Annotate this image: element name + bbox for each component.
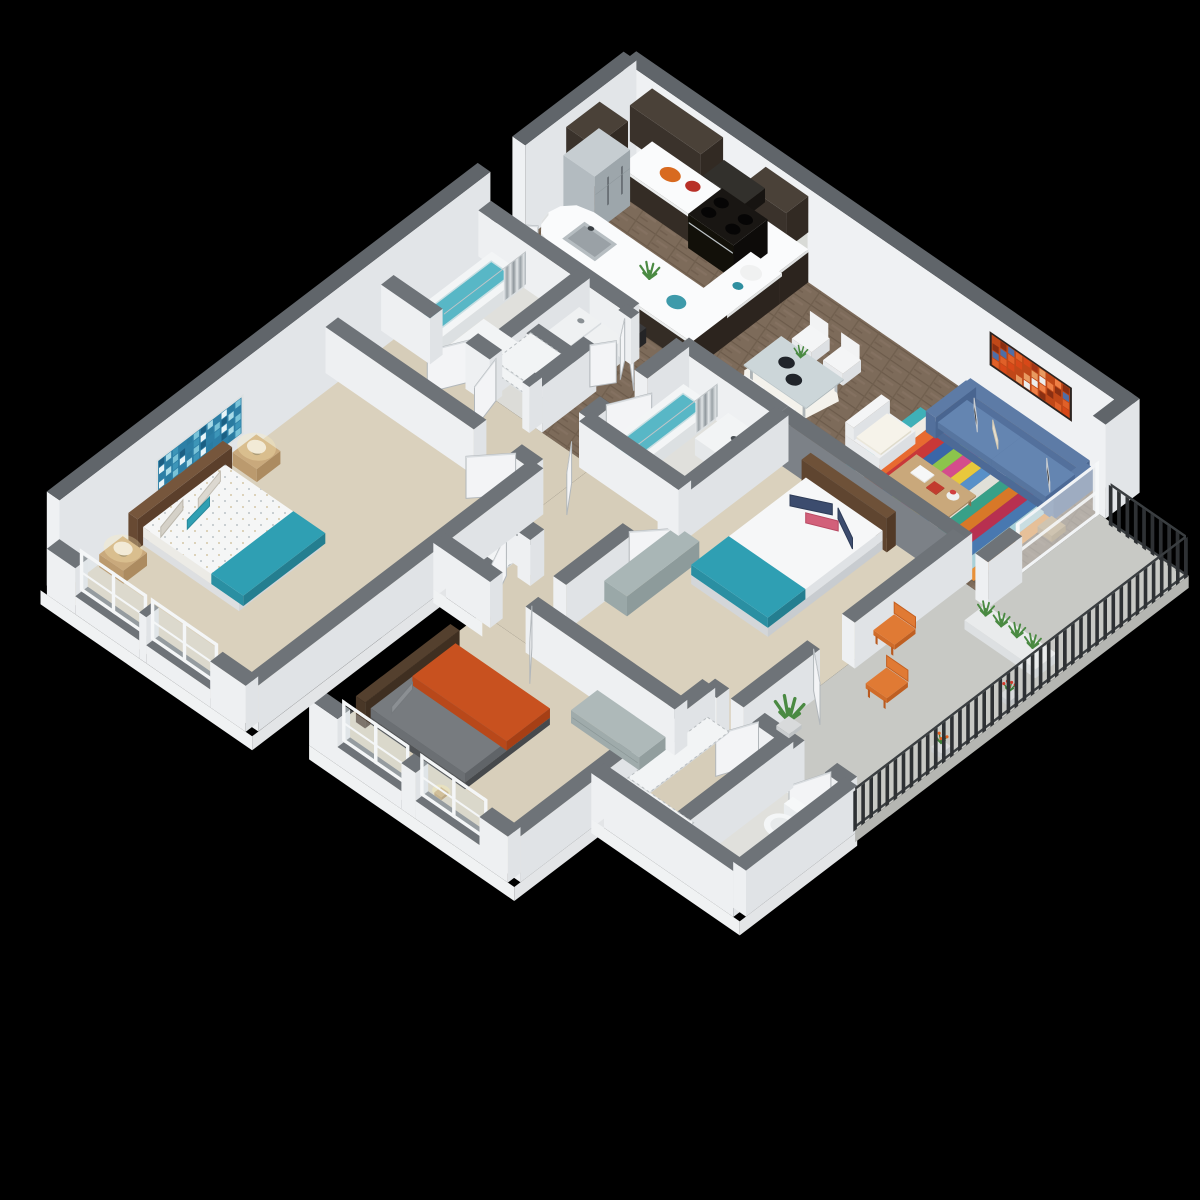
balcony-railing-east-slat: [1031, 654, 1035, 697]
balcony-railing-east-slat: [894, 758, 898, 801]
balcony-railing-east-slat: [1152, 561, 1156, 604]
balcony-railing-east-slat: [999, 678, 1003, 721]
balcony-railing-east-slat: [1055, 635, 1059, 678]
balcony-railing-east-slat: [861, 783, 865, 826]
balcony-railing-east-slat: [1184, 537, 1188, 580]
balcony-railing-east-slat: [1120, 586, 1124, 629]
wall-hall-y17-d-face-e: [679, 480, 692, 536]
balcony-railing-north-slat: [1109, 485, 1113, 528]
balcony-railing-east-slat: [950, 715, 954, 758]
balcony-railing-east-slat: [1112, 592, 1116, 635]
balcony-railing-east-slat: [910, 746, 914, 789]
window-bedroom3-b-post: [420, 753, 423, 797]
wall-hall-y17-c-face-e: [529, 377, 542, 433]
wall-bedroom3-south-c-face-e: [508, 827, 521, 883]
bedroom2-headboard-face-e: [887, 512, 896, 553]
fridge-handle: [621, 166, 623, 195]
balcony-railing-east-slat: [966, 703, 970, 746]
balcony-railing-east-slat: [1079, 617, 1083, 660]
wall-hall-y17-a-face-e: [430, 309, 443, 365]
wall-bedroom1-south-c-face-e: [246, 676, 259, 732]
balcony-railing-east-slat: [1015, 666, 1019, 709]
balcony-railing-east-slat: [1176, 543, 1180, 586]
balcony-railing-east-slat: [1023, 660, 1027, 703]
balcony-railing-east-slat: [1039, 647, 1043, 690]
wall-living-east-low-face-s: [975, 553, 988, 608]
wall-laundry-east-a-face-e: [631, 312, 639, 364]
balcony-railing-east-slat: [1087, 611, 1091, 654]
balcony-railing-east-slat: [1136, 574, 1140, 617]
balcony-railing-east-slat: [974, 697, 978, 740]
fridge-handle: [607, 176, 609, 205]
balcony-railing-north-slat: [1117, 491, 1121, 534]
balcony-chair-leg: [876, 636, 878, 646]
window-bedroom3-a-post: [342, 699, 345, 743]
balcony-railing-east-slat: [1128, 580, 1132, 623]
balcony-chair-leg: [868, 689, 870, 699]
balcony-chair-leg: [891, 646, 893, 656]
wall-bedroom3-north-a-face-e: [490, 572, 503, 628]
wall-closetB-east-a-face-s: [518, 531, 531, 586]
balcony-railing-east-slat: [1095, 604, 1099, 647]
balcony-railing-east-slat: [918, 740, 922, 783]
wall-bedroom1-south-b-face-s: [139, 612, 146, 663]
balcony-railing-east-slat: [869, 777, 873, 820]
balcony-railing-east-slat: [853, 789, 857, 832]
balcony-slider-white-railing-post: [1095, 460, 1099, 517]
balcony-railing-north-slat: [1142, 508, 1146, 551]
balcony-railing-east-slat: [958, 709, 962, 752]
balcony-railing-east-slat: [1160, 555, 1164, 598]
wall-bedroom3-south-b-face-s: [401, 763, 415, 819]
wall-hall-y17-c-face-s: [522, 382, 529, 433]
floorplan-geometry: [41, 51, 1189, 935]
balcony-railing-east-slat: [886, 764, 890, 807]
balcony-railing-north-slat: [1126, 496, 1130, 539]
balcony-chair-leg: [884, 700, 886, 710]
wall-bedroom2-east-a-face-s: [842, 614, 855, 669]
balcony-railing-east-slat: [934, 727, 938, 770]
balcony-railing-north-slat: [1151, 514, 1155, 557]
balcony-railing-east-slat: [942, 721, 946, 764]
wall-annex-east-face-s: [733, 862, 746, 917]
balcony-railing-east-slat: [1063, 629, 1067, 672]
window-bedroom1-a-post: [80, 548, 84, 592]
balcony-railing-east-slat: [1047, 641, 1051, 684]
floorplan-canvas: [0, 0, 1200, 1200]
window-bedroom1-b-post: [151, 597, 155, 641]
balcony-railing-east-slat: [1071, 623, 1075, 666]
balcony-railing-north-slat: [1134, 502, 1138, 545]
balcony-railing-east-slat: [902, 752, 906, 795]
balcony-railing-east-slat: [1007, 672, 1011, 715]
balcony-railing-east-slat: [878, 771, 882, 814]
floorplan-3d-render: [0, 0, 1200, 1200]
balcony-railing-east-slat: [926, 734, 930, 777]
balcony-railing-east-slat: [1168, 549, 1172, 592]
balcony-railing-east-slat: [990, 684, 994, 727]
wall-bedroom3-north-b-face-e: [675, 700, 688, 756]
balcony-railing-east-slat: [1103, 598, 1107, 641]
balcony-railing-east-slat: [982, 691, 986, 734]
balcony-railing-east-slat: [1144, 567, 1148, 610]
door-laundry-bifold: [590, 341, 616, 387]
